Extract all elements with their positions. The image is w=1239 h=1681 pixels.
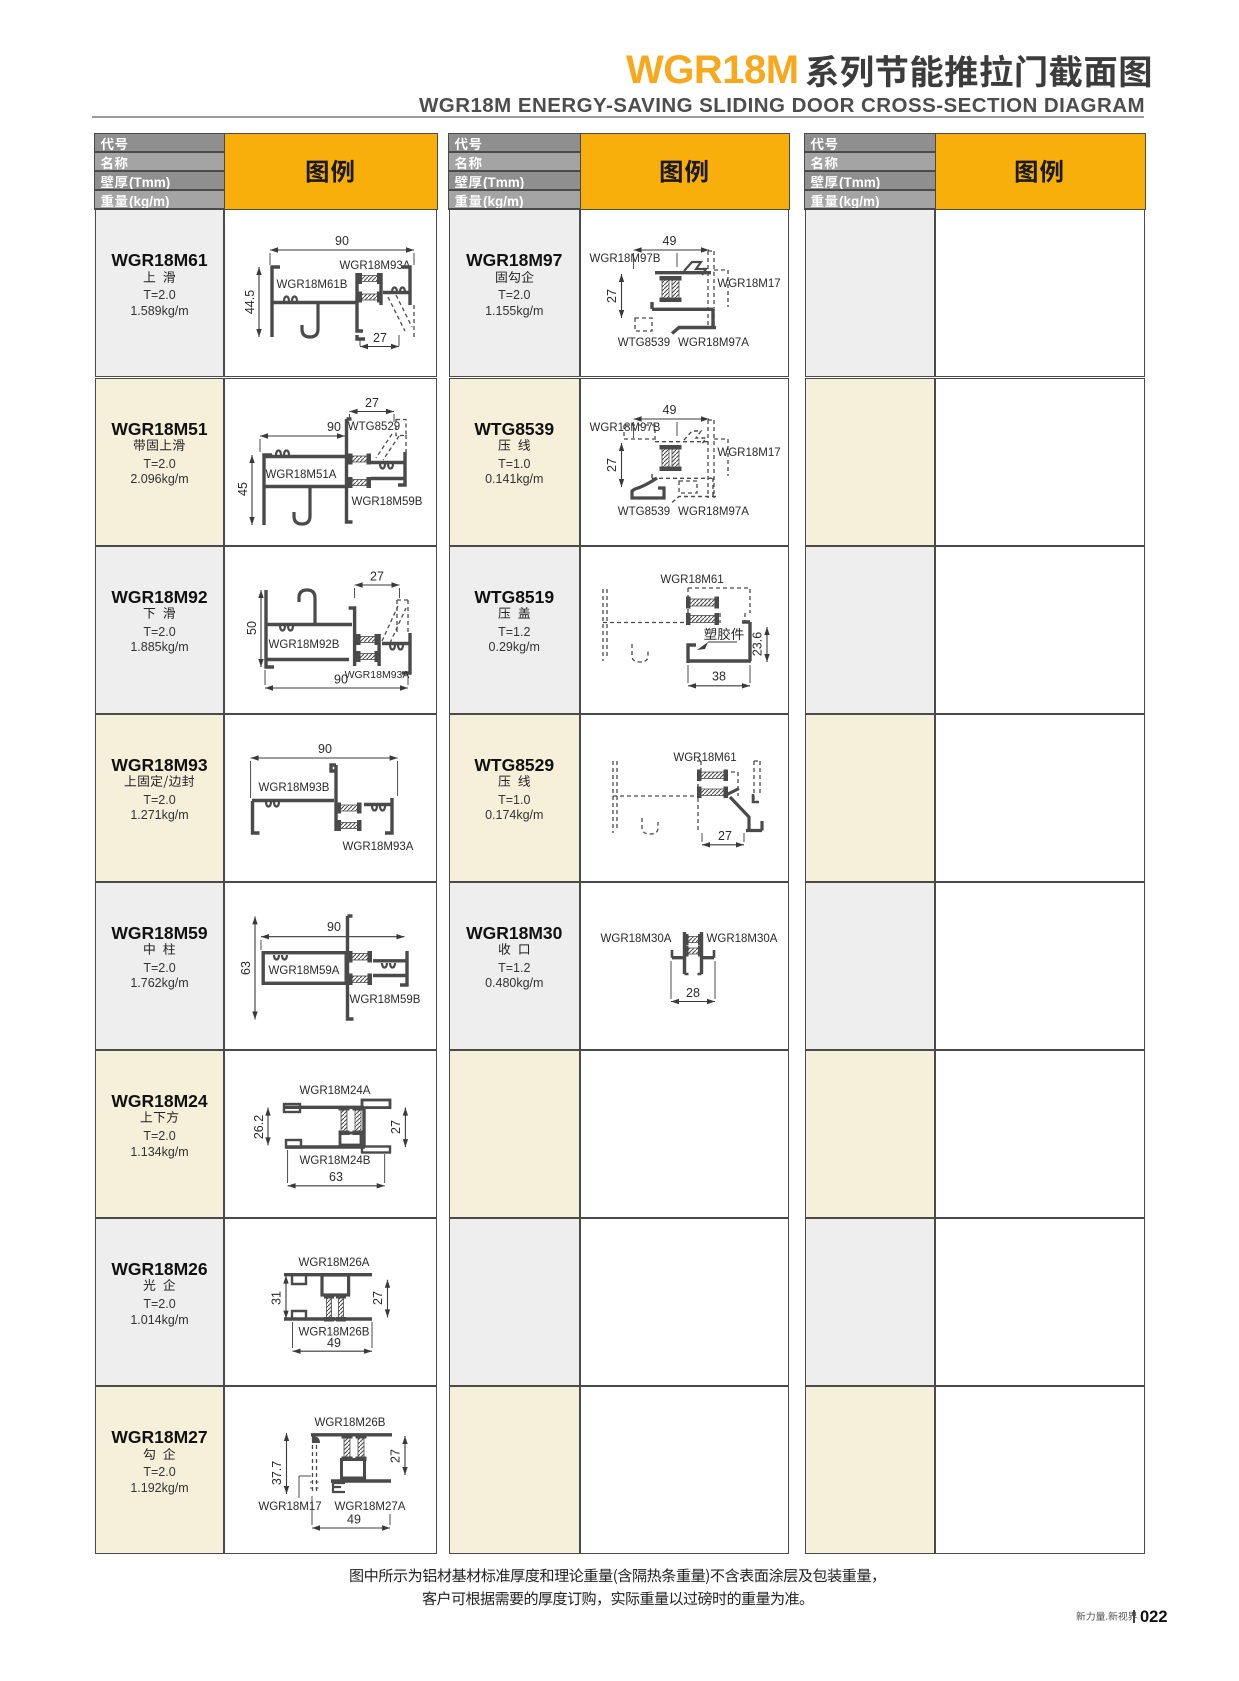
svg-text:WGR18M92B: WGR18M92B <box>269 639 340 651</box>
svg-text:50: 50 <box>245 621 259 635</box>
svg-text:27: 27 <box>718 829 732 843</box>
svg-text:WGR18M17: WGR18M17 <box>717 278 780 290</box>
svg-text:WGR18M59B: WGR18M59B <box>352 496 423 508</box>
svg-text:WGR18M17: WGR18M17 <box>717 447 780 459</box>
svg-text:WGR18M97A: WGR18M97A <box>678 506 749 518</box>
svg-text:27: 27 <box>370 569 384 583</box>
svg-text:90: 90 <box>327 420 341 434</box>
svg-text:(kg/m): (kg/m) <box>839 194 880 209</box>
svg-text:WGR18M93A: WGR18M93A <box>340 260 411 272</box>
svg-text:WGR18M26A: WGR18M26A <box>299 1257 370 1269</box>
svg-text:27: 27 <box>605 289 619 303</box>
svg-text:WGR18M93A: WGR18M93A <box>343 841 414 853</box>
svg-text:45: 45 <box>236 482 250 496</box>
svg-text:49: 49 <box>662 234 676 248</box>
svg-text:27: 27 <box>389 1120 403 1134</box>
svg-text:WGR18M97B: WGR18M97B <box>589 422 660 434</box>
svg-text:WGR18M97B: WGR18M97B <box>589 253 660 265</box>
svg-text:27: 27 <box>373 331 387 345</box>
svg-text:WGR18M27A: WGR18M27A <box>335 1501 406 1513</box>
svg-text:WGR18M30A: WGR18M30A <box>706 933 777 945</box>
svg-text:WGR18M24B: WGR18M24B <box>300 1155 371 1167</box>
svg-text:90: 90 <box>318 742 332 756</box>
svg-text:27: 27 <box>389 1449 403 1463</box>
svg-text:WGR18M30A: WGR18M30A <box>600 933 671 945</box>
svg-text:WGR18M59A: WGR18M59A <box>269 965 340 977</box>
svg-text:90: 90 <box>335 234 349 248</box>
svg-text:44.5: 44.5 <box>243 290 257 314</box>
svg-text:49: 49 <box>662 403 676 417</box>
svg-text:WTG8529: WTG8529 <box>348 421 400 433</box>
svg-text:WGR18M51A: WGR18M51A <box>266 469 337 481</box>
svg-text:WGR18M97A: WGR18M97A <box>678 337 749 349</box>
svg-text:WGR18M26B: WGR18M26B <box>315 1417 386 1429</box>
svg-text:WTG8539: WTG8539 <box>617 337 669 349</box>
svg-text:(kg/m): (kg/m) <box>129 194 170 209</box>
svg-text:WGR18M61: WGR18M61 <box>673 752 736 764</box>
svg-text:27: 27 <box>371 1291 385 1305</box>
svg-text:WGR18M93B: WGR18M93B <box>259 782 330 794</box>
svg-text:28: 28 <box>686 986 700 1000</box>
svg-text:37.7: 37.7 <box>270 1461 284 1485</box>
svg-text:WGR18M24A: WGR18M24A <box>300 1085 371 1097</box>
svg-text:49: 49 <box>327 1336 341 1350</box>
svg-text:63: 63 <box>329 1170 343 1184</box>
svg-text:WTG8539: WTG8539 <box>617 506 669 518</box>
svg-text:26.2: 26.2 <box>252 1115 266 1139</box>
svg-text:49: 49 <box>347 1513 361 1527</box>
svg-text:WGR18M61: WGR18M61 <box>660 574 723 586</box>
svg-text:WGR18M59B: WGR18M59B <box>350 994 421 1006</box>
svg-text:(Tmm): (Tmm) <box>129 175 170 190</box>
svg-text:(kg/m): (kg/m) <box>483 194 524 209</box>
svg-text:(Tmm): (Tmm) <box>483 175 524 190</box>
svg-text:90: 90 <box>327 920 341 934</box>
svg-text:27: 27 <box>365 396 379 410</box>
svg-text:WGR18M61B: WGR18M61B <box>277 279 348 291</box>
svg-text:31: 31 <box>270 1291 284 1305</box>
svg-text:23.6: 23.6 <box>750 631 764 655</box>
svg-text:WGR18M93A: WGR18M93A <box>345 669 410 681</box>
svg-text:27: 27 <box>605 458 619 472</box>
svg-text:63: 63 <box>239 961 253 975</box>
svg-text:(Tmm): (Tmm) <box>839 175 880 190</box>
svg-text:38: 38 <box>712 669 726 683</box>
